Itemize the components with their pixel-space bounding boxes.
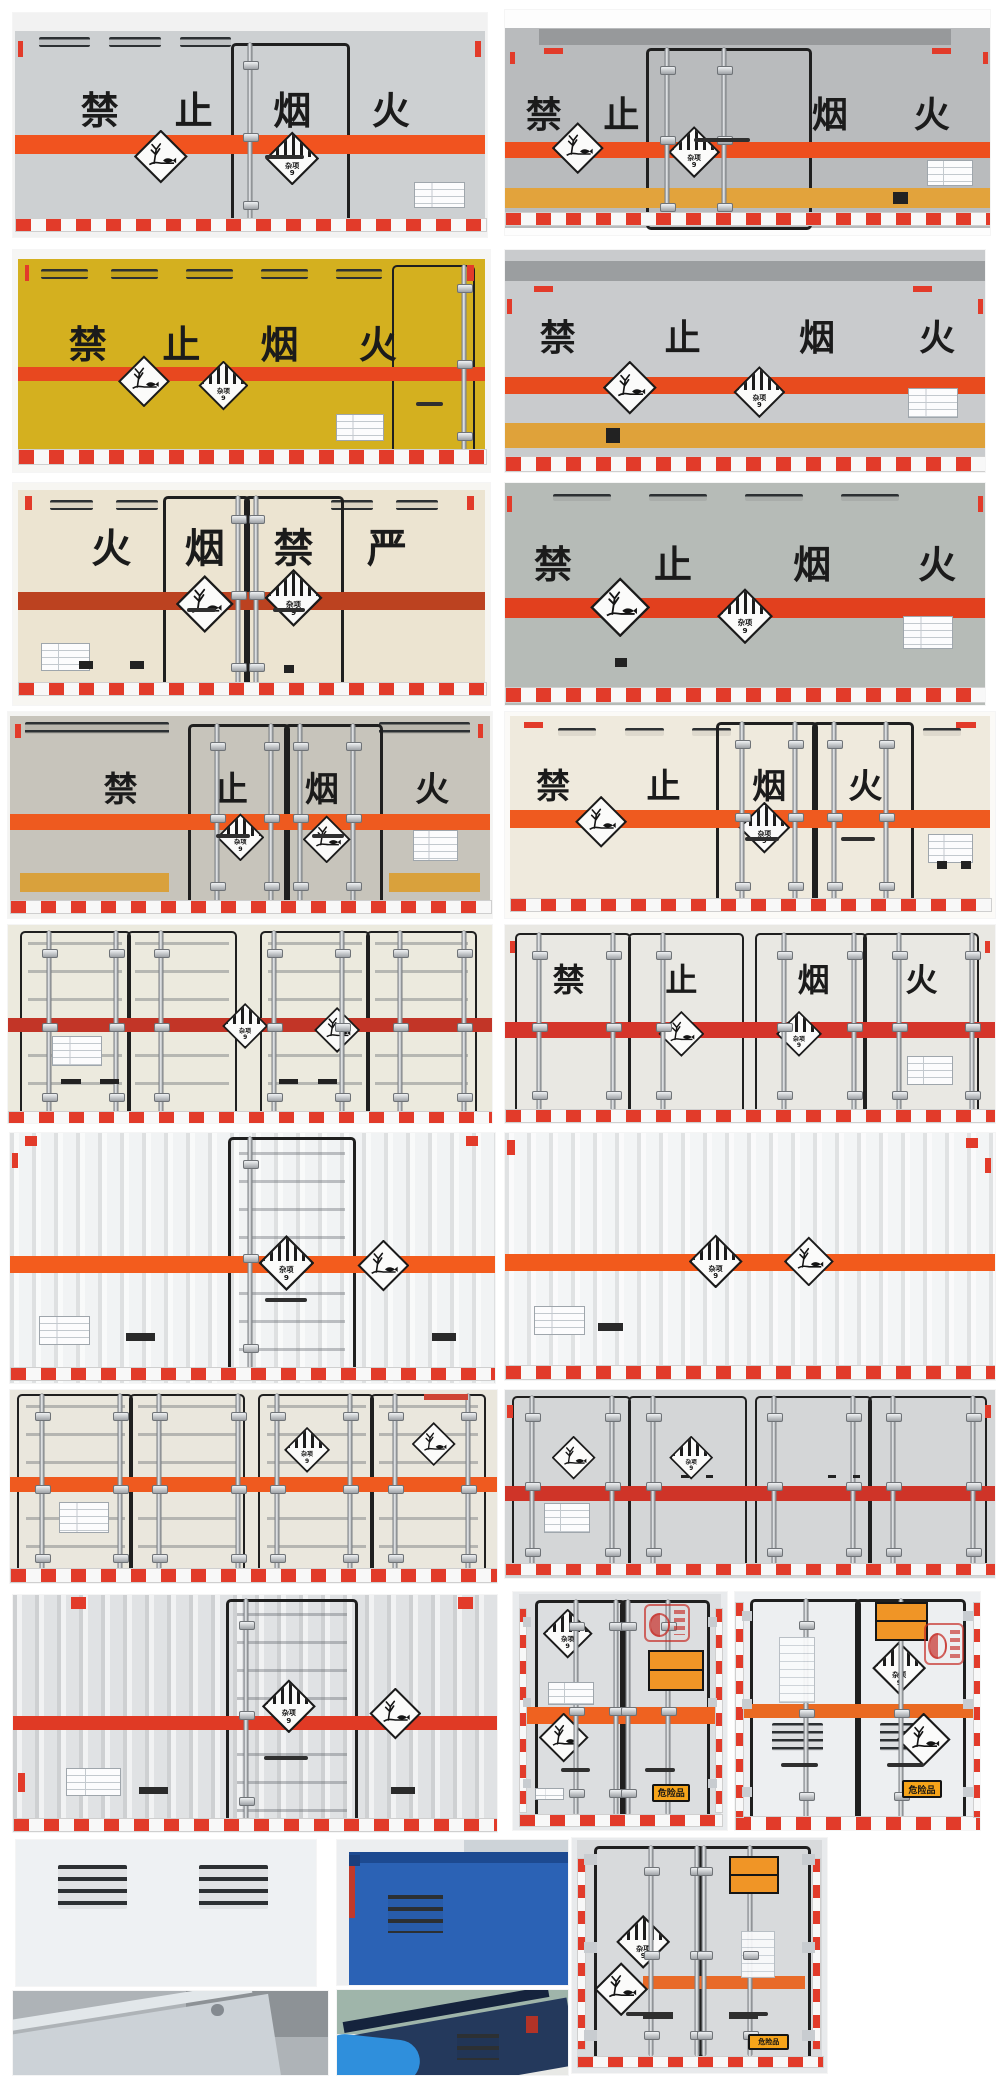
rod-clamp bbox=[646, 1548, 662, 1557]
warning-stripe bbox=[10, 1477, 497, 1492]
rod-clamp bbox=[293, 882, 309, 891]
rod-clamp bbox=[606, 1091, 622, 1100]
rod-clamp bbox=[697, 2031, 713, 2040]
scene-layer bbox=[349, 1855, 568, 1986]
rod-clamp bbox=[799, 1621, 815, 1630]
photo-container-rear-center-door-red-stripe: 杂项9 bbox=[13, 1595, 497, 1832]
warning-stripe bbox=[505, 1022, 995, 1038]
vehicle-info-plate bbox=[903, 616, 953, 649]
warning-char: 止 bbox=[162, 326, 200, 364]
vehicle-info-plate bbox=[548, 1682, 594, 1705]
scene-layer bbox=[349, 1855, 361, 1867]
rod-clamp bbox=[239, 1711, 255, 1720]
stamp-circle bbox=[928, 1633, 947, 1659]
reflector-mark bbox=[25, 265, 30, 281]
warning-char: 烟 bbox=[799, 321, 835, 357]
rod-clamp bbox=[109, 1093, 125, 1102]
warning-stripe bbox=[643, 1976, 805, 1990]
reflector-mark bbox=[983, 52, 988, 64]
rod-clamp bbox=[35, 1554, 51, 1563]
color-band bbox=[505, 261, 985, 281]
class9-text: 杂项9 bbox=[201, 388, 246, 402]
reflector-mark bbox=[956, 722, 975, 728]
reflective-strip bbox=[10, 900, 491, 914]
rod-clamp bbox=[113, 1554, 129, 1563]
warning-char: 火 bbox=[919, 321, 955, 357]
hazard-diamond-environment bbox=[575, 796, 627, 848]
rod-clamp bbox=[646, 1482, 662, 1491]
truck-body: 禁止烟火杂项9 bbox=[18, 259, 485, 463]
truck-body: 禁止烟火杂项9 bbox=[505, 28, 990, 228]
rod-clamp bbox=[621, 1707, 637, 1716]
rod-clamp bbox=[152, 1412, 168, 1421]
rod-clamp bbox=[154, 1023, 170, 1032]
reflector-mark bbox=[742, 1787, 752, 1797]
reflector-mark bbox=[79, 661, 93, 669]
photo-truck-rear-landscape-placards: 杂项9危险品 bbox=[735, 1592, 980, 1830]
environment-hazard-icon bbox=[907, 1723, 940, 1756]
rod-clamp bbox=[846, 1548, 862, 1557]
rod-clamp bbox=[109, 949, 125, 958]
rod-clamp bbox=[154, 949, 170, 958]
photo-container-corner-navy-tarp bbox=[337, 1990, 568, 2075]
louver-vent bbox=[58, 1865, 127, 1909]
rod-clamp bbox=[966, 1548, 982, 1557]
scene-layer bbox=[349, 1852, 568, 1864]
door-handle bbox=[645, 1768, 675, 1772]
reflector-mark bbox=[467, 496, 474, 510]
rod-clamp bbox=[767, 1548, 783, 1557]
environment-hazard-icon bbox=[793, 1246, 824, 1277]
photo-truck-rear-gray-single-door: 禁止烟火杂项9 bbox=[13, 13, 487, 237]
truck-body: 禁止烟火杂项9 bbox=[505, 250, 985, 472]
reflective-strip bbox=[13, 1818, 497, 1832]
reflector-mark bbox=[507, 1140, 514, 1155]
louver-vent bbox=[41, 269, 88, 279]
warning-char: 烟 bbox=[798, 964, 830, 996]
reflector-mark bbox=[802, 1942, 814, 1953]
photo-panel-with-louver-vents bbox=[16, 1840, 316, 1986]
rod-clamp bbox=[621, 1789, 637, 1798]
truck-body: 杂项9 bbox=[10, 1390, 497, 1583]
rod-clamp bbox=[239, 1621, 255, 1630]
rod-clamp bbox=[35, 1412, 51, 1421]
warning-char: 火 bbox=[372, 92, 410, 130]
vehicle-info-plate bbox=[907, 1056, 953, 1086]
truck-body: 火烟禁严杂项9 bbox=[18, 490, 485, 694]
reflector-mark bbox=[606, 428, 620, 444]
photo-truck-rear-light-gray-amber-band: 禁止烟火杂项9 bbox=[505, 250, 985, 472]
class9-text: 杂项9 bbox=[736, 395, 782, 409]
rod-clamp bbox=[569, 1707, 585, 1716]
rod-clamp bbox=[249, 515, 265, 524]
reflector-mark bbox=[802, 2030, 814, 2041]
louver-vent bbox=[923, 728, 961, 736]
rod-clamp bbox=[388, 1485, 404, 1494]
reflector-mark bbox=[12, 1153, 18, 1168]
rod-clamp bbox=[457, 1093, 473, 1102]
rod-clamp bbox=[788, 882, 804, 891]
rod-clamp bbox=[777, 1023, 793, 1032]
rod-clamp bbox=[335, 1093, 351, 1102]
louver-vent bbox=[379, 722, 470, 734]
reflector-mark bbox=[598, 1323, 623, 1330]
rod-clamp bbox=[966, 1482, 982, 1491]
reflector-mark bbox=[893, 192, 908, 204]
reflector-mark bbox=[523, 1617, 531, 1626]
door-handle bbox=[265, 1298, 307, 1302]
truck-body: 杂项9危险品 bbox=[577, 1840, 822, 2066]
reflective-strip bbox=[505, 212, 990, 226]
rod-clamp bbox=[767, 1413, 783, 1422]
louver-vent bbox=[180, 37, 232, 47]
warning-stripe bbox=[505, 1486, 995, 1501]
reflector-mark bbox=[432, 1333, 456, 1341]
rod-clamp bbox=[335, 1023, 351, 1032]
rod-clamp bbox=[767, 1482, 783, 1491]
hazard-diamond-environment bbox=[369, 1688, 421, 1740]
vehicle-info-plate bbox=[59, 1502, 110, 1533]
photo-collage: 禁止烟火杂项9禁止烟火杂项9禁止烟火杂项9禁止烟火杂项9火烟禁严杂项9禁止烟火杂… bbox=[0, 0, 1000, 2080]
rod-clamp bbox=[270, 1412, 286, 1421]
rod-clamp bbox=[388, 1412, 404, 1421]
rod-clamp bbox=[799, 1792, 815, 1801]
reflector-mark bbox=[126, 1333, 155, 1341]
warning-char: 禁 bbox=[536, 770, 570, 804]
reflector-mark bbox=[963, 1699, 973, 1709]
rod-clamp bbox=[644, 1951, 660, 1960]
rod-clamp bbox=[343, 1554, 359, 1563]
louver-vent bbox=[336, 269, 383, 279]
reflective-strip-vertical bbox=[735, 1602, 744, 1818]
dangerous-goods-plate: 危险品 bbox=[748, 2034, 789, 2049]
louver-vent bbox=[25, 722, 169, 734]
photo-truck-rear-four-door-rods: 杂项9 bbox=[10, 1390, 497, 1583]
truck-body: 禁止烟火杂项9 bbox=[10, 716, 489, 912]
warning-char: 禁 bbox=[274, 529, 314, 569]
scene-layer bbox=[526, 2016, 538, 2033]
warning-char: 止 bbox=[603, 98, 639, 134]
warning-char: 烟 bbox=[273, 92, 311, 130]
rod-clamp bbox=[231, 663, 247, 672]
reflector-mark bbox=[961, 861, 971, 869]
rod-clamp bbox=[661, 1707, 677, 1716]
class9-text: 杂项9 bbox=[692, 1265, 740, 1280]
warning-char: 火 bbox=[91, 529, 131, 569]
reflector-mark bbox=[139, 1787, 168, 1794]
reflector-mark bbox=[708, 1617, 716, 1626]
reflector-mark bbox=[584, 1854, 596, 1865]
rod-clamp bbox=[660, 66, 676, 75]
door-handle bbox=[264, 1756, 308, 1760]
reflector-mark bbox=[643, 2012, 672, 2019]
truck-body bbox=[16, 1840, 316, 1986]
reflective-strip-vertical bbox=[812, 1858, 821, 2049]
warning-char: 烟 bbox=[812, 98, 848, 134]
rod-clamp bbox=[267, 1093, 283, 1102]
warning-char: 烟 bbox=[305, 773, 339, 807]
truck-body: 杂项9 bbox=[13, 1595, 497, 1832]
rod-clamp bbox=[457, 432, 473, 441]
rod-clamp bbox=[42, 949, 58, 958]
reflector-mark bbox=[978, 299, 983, 315]
reflector-mark bbox=[510, 52, 515, 64]
door-handle bbox=[216, 834, 250, 838]
rod-clamp bbox=[243, 133, 259, 142]
reflective-strip bbox=[505, 1365, 995, 1379]
photo-truck-rear-four-door-red-stripe: 杂项9 bbox=[505, 1390, 995, 1578]
rod-clamp bbox=[42, 1093, 58, 1102]
rod-clamp bbox=[847, 1023, 863, 1032]
louver-vent bbox=[388, 1895, 443, 1933]
environment-hazard-icon bbox=[420, 1431, 447, 1458]
rod-clamp bbox=[239, 1797, 255, 1806]
rod-clamp bbox=[388, 1554, 404, 1563]
rod-clamp bbox=[346, 882, 362, 891]
rod-clamp bbox=[965, 1023, 981, 1032]
vehicle-info-plate bbox=[908, 388, 958, 419]
environment-hazard-icon bbox=[367, 1250, 399, 1282]
door-handle bbox=[187, 608, 216, 612]
rod-clamp bbox=[660, 203, 676, 212]
environment-hazard-icon bbox=[379, 1698, 411, 1730]
photo-truck-rear-gray-amber-band: 禁止烟火杂项9 bbox=[505, 10, 990, 235]
reflective-strip bbox=[735, 1816, 980, 1830]
reflector-mark bbox=[100, 1079, 119, 1084]
photo-truck-rear-cream-reversed-text: 火烟禁严杂项9 bbox=[13, 483, 490, 705]
rod-clamp bbox=[777, 1091, 793, 1100]
rod-clamp bbox=[267, 1023, 283, 1032]
louver-vent bbox=[111, 269, 158, 279]
reflective-strip bbox=[510, 898, 992, 912]
truck-body: 禁止烟火杂项9 bbox=[505, 925, 995, 1123]
quality-seal-stamp bbox=[924, 1623, 965, 1665]
warning-char: 止 bbox=[654, 546, 692, 584]
environment-hazard-icon bbox=[560, 1444, 587, 1471]
reflector-mark bbox=[706, 1475, 713, 1479]
rod-clamp bbox=[605, 1548, 621, 1557]
warning-char: 禁 bbox=[69, 326, 107, 364]
rod-clamp bbox=[210, 814, 226, 823]
reflector-mark bbox=[985, 1158, 991, 1173]
reflective-strip bbox=[10, 1568, 497, 1583]
reflector-mark bbox=[534, 286, 553, 293]
reflector-mark bbox=[742, 1699, 752, 1709]
rod-clamp bbox=[532, 1023, 548, 1032]
reflector-mark bbox=[18, 41, 24, 57]
rod-clamp bbox=[846, 1482, 862, 1491]
door-handle bbox=[745, 837, 779, 841]
rod-clamp bbox=[886, 1548, 902, 1557]
info-sticker bbox=[779, 1637, 815, 1703]
rod-clamp bbox=[152, 1485, 168, 1494]
rod-clamp bbox=[335, 949, 351, 958]
reflector-mark bbox=[458, 1597, 473, 1609]
reflector-mark bbox=[523, 1698, 531, 1707]
vehicle-info-plate bbox=[66, 1768, 121, 1796]
reflector-mark bbox=[61, 1079, 80, 1084]
warning-char: 火 bbox=[905, 964, 937, 996]
reflective-strip bbox=[8, 1111, 492, 1123]
rod-clamp bbox=[827, 740, 843, 749]
rod-clamp bbox=[532, 951, 548, 960]
reflector-mark bbox=[507, 299, 512, 315]
rod-clamp bbox=[735, 813, 751, 822]
color-band bbox=[389, 873, 480, 893]
warning-char: 烟 bbox=[261, 326, 299, 364]
rod-clamp bbox=[892, 1023, 908, 1032]
rod-clamp bbox=[646, 1413, 662, 1422]
reflector-mark bbox=[467, 265, 474, 281]
reflective-strip bbox=[18, 682, 487, 696]
reflector-mark bbox=[524, 722, 543, 728]
rod-clamp bbox=[827, 882, 843, 891]
rod-clamp bbox=[457, 284, 473, 293]
truck-body: 杂项9危险品 bbox=[519, 1594, 720, 1825]
dangerous-goods-plate: 危险品 bbox=[652, 1784, 690, 1802]
rod-clamp bbox=[965, 1091, 981, 1100]
reflector-mark bbox=[963, 1611, 973, 1621]
rod-clamp bbox=[457, 1023, 473, 1032]
environment-hazard-icon bbox=[585, 806, 617, 838]
warning-stripe bbox=[18, 367, 485, 381]
stamp-text-strokes bbox=[674, 1610, 686, 1636]
rod-clamp bbox=[777, 951, 793, 960]
louver-vent bbox=[116, 500, 158, 510]
reflector-mark bbox=[828, 1475, 835, 1479]
reflector-mark bbox=[584, 2030, 596, 2041]
louver-vent bbox=[457, 2034, 499, 2060]
orange-hazard-plate bbox=[875, 1602, 928, 1642]
rod-clamp bbox=[270, 1554, 286, 1563]
photo-container-blue bbox=[337, 1840, 568, 1985]
door-handle bbox=[416, 402, 444, 406]
rod-clamp bbox=[621, 1622, 637, 1631]
warning-char: 烟 bbox=[793, 546, 831, 584]
louver-vent bbox=[186, 269, 233, 279]
reflector-mark bbox=[71, 1597, 86, 1609]
rod-clamp bbox=[879, 882, 895, 891]
warning-char: 烟 bbox=[752, 770, 786, 804]
environment-hazard-icon bbox=[602, 589, 639, 626]
warning-char: 火 bbox=[359, 326, 397, 364]
rod-clamp bbox=[270, 1485, 286, 1494]
rod-clamp bbox=[605, 1413, 621, 1422]
reflector-mark bbox=[25, 1136, 37, 1146]
warning-char: 火 bbox=[914, 98, 950, 134]
class9-text: 杂项9 bbox=[720, 619, 770, 634]
rod-clamp bbox=[113, 1485, 129, 1494]
reflector-mark bbox=[615, 658, 627, 667]
rod-clamp bbox=[605, 1482, 621, 1491]
photo-truck-rear-gray-flat: 禁止烟火杂项9 bbox=[505, 483, 985, 705]
door-handle bbox=[561, 1768, 591, 1772]
rod-clamp bbox=[656, 1023, 672, 1032]
louver-vent bbox=[50, 500, 92, 510]
rod-clamp bbox=[346, 742, 362, 751]
door-handle bbox=[841, 837, 875, 841]
rod-clamp bbox=[879, 740, 895, 749]
louver-vent bbox=[649, 494, 707, 501]
reflector-mark bbox=[25, 496, 32, 510]
reflector-mark bbox=[985, 941, 990, 953]
reflective-strip bbox=[577, 2056, 824, 2068]
warning-char: 严 bbox=[367, 529, 407, 569]
photo-truck-rear-portrait-placards: 杂项9危险品 bbox=[513, 1592, 727, 1830]
reflective-strip bbox=[505, 456, 985, 471]
class9-stripes bbox=[692, 1237, 740, 1259]
reflector-mark bbox=[932, 48, 951, 54]
louver-vent bbox=[199, 1865, 268, 1909]
rod-clamp bbox=[243, 1254, 259, 1263]
rod-clamp bbox=[264, 742, 280, 751]
louver-vent bbox=[553, 494, 611, 501]
reflective-strip-vertical bbox=[577, 1858, 586, 2049]
rod-clamp bbox=[393, 949, 409, 958]
reflector-mark bbox=[802, 1854, 814, 1865]
warning-char: 禁 bbox=[81, 92, 119, 130]
rod-clamp bbox=[346, 814, 362, 823]
photo-truck-rear-cream-double-door: 禁止烟火杂项9 bbox=[505, 712, 995, 918]
environment-hazard-icon bbox=[562, 132, 594, 164]
stamp-circle bbox=[649, 1613, 671, 1637]
reflector-mark bbox=[284, 665, 293, 673]
truck-body: 杂项9 bbox=[505, 1390, 995, 1578]
reflector-mark bbox=[966, 1138, 978, 1148]
rod-clamp bbox=[717, 203, 733, 212]
rod-clamp bbox=[735, 882, 751, 891]
reflective-strip bbox=[505, 1563, 995, 1576]
rod-clamp bbox=[267, 949, 283, 958]
rod-clamp bbox=[393, 1093, 409, 1102]
louver-vent bbox=[109, 37, 161, 47]
rod-clamp bbox=[525, 1548, 541, 1557]
quality-seal-stamp bbox=[644, 1604, 690, 1643]
rod-clamp bbox=[532, 1091, 548, 1100]
rod-clamp bbox=[886, 1482, 902, 1491]
reflector-mark bbox=[424, 1394, 468, 1400]
louver-vent bbox=[396, 500, 438, 510]
reflector-mark bbox=[708, 1779, 716, 1788]
color-band bbox=[20, 873, 169, 893]
rod-clamp bbox=[231, 1412, 247, 1421]
rod-clamp bbox=[293, 814, 309, 823]
warning-char: 止 bbox=[665, 321, 701, 357]
truck-body: 杂项9危险品 bbox=[735, 1592, 980, 1830]
reflective-strip-vertical bbox=[973, 1602, 980, 1818]
vehicle-info-plate bbox=[39, 1316, 90, 1346]
environment-hazard-icon bbox=[613, 371, 646, 404]
truck-body: 杂项9 bbox=[10, 1133, 495, 1383]
environment-hazard-icon bbox=[144, 140, 177, 173]
louver-vent bbox=[261, 269, 308, 279]
rod-clamp bbox=[735, 740, 751, 749]
reflector-mark bbox=[742, 1611, 752, 1621]
rod-clamp bbox=[154, 1093, 170, 1102]
dangerous-goods-plate: 危险品 bbox=[902, 1780, 943, 1798]
environment-hazard-icon bbox=[312, 824, 342, 854]
reflector-mark bbox=[279, 1079, 298, 1084]
photo-truck-rear-yellow: 禁止烟火杂项9 bbox=[13, 250, 490, 472]
stamp-text-strokes bbox=[950, 1630, 960, 1658]
rod-clamp bbox=[343, 1485, 359, 1494]
warning-char: 火 bbox=[415, 773, 449, 807]
truck-body: 禁止烟火杂项9 bbox=[510, 716, 990, 912]
rod-clamp bbox=[879, 813, 895, 822]
rod-clamp bbox=[886, 1413, 902, 1422]
warning-char: 止 bbox=[665, 964, 697, 996]
warning-char: 火 bbox=[918, 546, 956, 584]
